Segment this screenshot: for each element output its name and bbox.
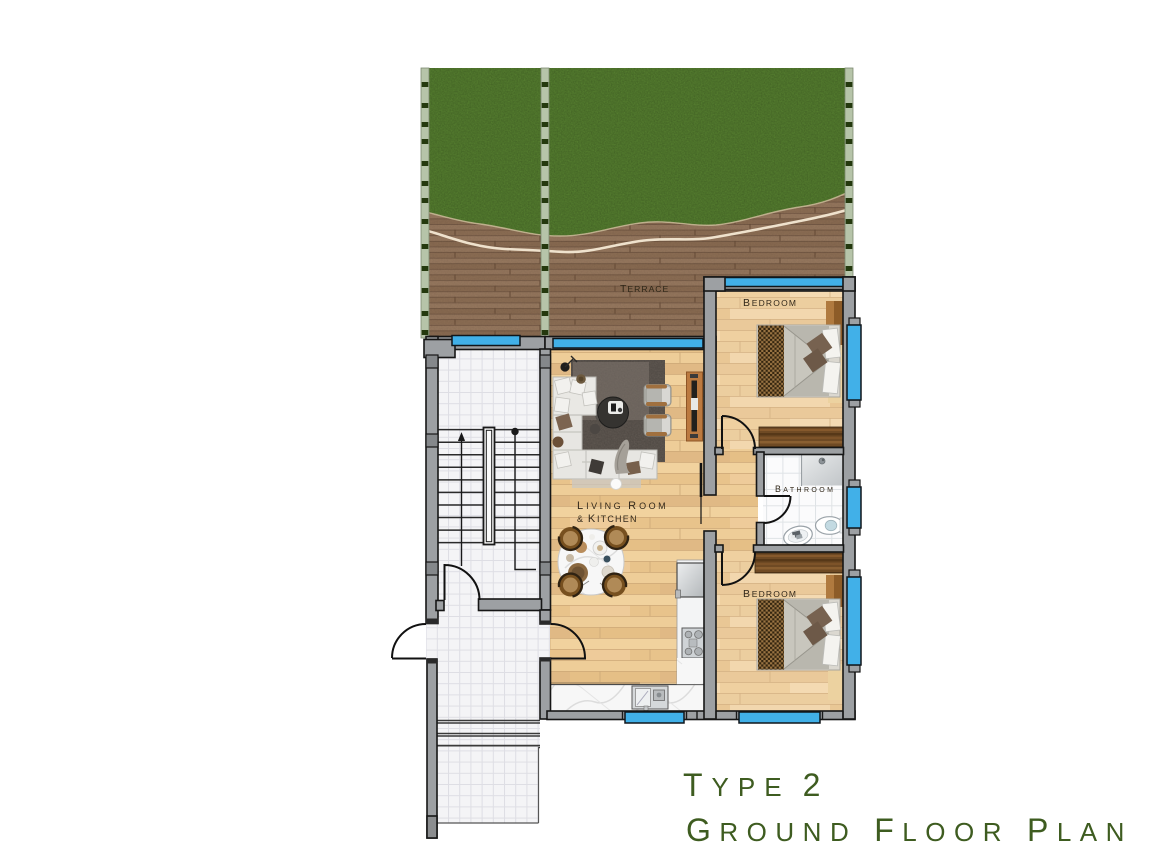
svg-text:LIVING ROOM: LIVING ROOM (577, 500, 668, 512)
svg-text:TERRACE: TERRACE (620, 283, 669, 295)
svg-text:BEDROOM: BEDROOM (743, 297, 797, 309)
svg-text:GROUNDFLOORPLAN: GROUNDFLOORPLAN (686, 812, 1133, 848)
svg-text:& KITCHEN: & KITCHEN (577, 513, 638, 525)
svg-text:BEDROOM: BEDROOM (743, 588, 797, 600)
svg-text:TYPE2: TYPE2 (683, 767, 829, 803)
